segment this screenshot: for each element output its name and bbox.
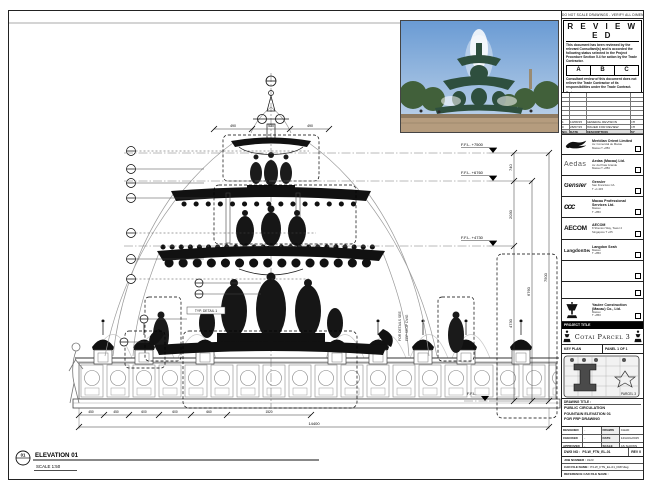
- side-notes: FOR DETAILS SEE FRP SHOP DWG: [398, 311, 409, 341]
- elevation-number: 01: [21, 453, 26, 458]
- status-selector: A B C: [566, 65, 639, 76]
- tier2-figures: [236, 206, 306, 247]
- stamp-checkbox: [635, 188, 641, 194]
- stamp-checkbox: [635, 290, 641, 296]
- top-dim-1: 490: [230, 124, 236, 128]
- gensler-logo: Gensler: [564, 183, 586, 189]
- top-dim-3: 490: [307, 124, 313, 128]
- reviewed-body-1: This document has been reviewed by the r…: [566, 43, 639, 64]
- consultant-macau-professional: ccc Macau Professional Services Ltd.Maca…: [562, 197, 643, 218]
- project-title-block: PROJECT TITLE Cotai Parcel 3: [562, 322, 643, 345]
- bottom-dimensions: 450 450 600 600 660 1520 14400: [76, 408, 552, 430]
- dim-6760: 6760: [526, 286, 531, 296]
- top-dimension: 490 530 490: [211, 124, 332, 132]
- key-plan-block: KEY PLAN PANEL 1 OF 1 PARCEL 3: [562, 345, 643, 399]
- dwg-no-value: P3-W_FTN_EL-01: [580, 448, 628, 456]
- ornament-icon: [634, 330, 642, 343]
- consultant-empty-2: [562, 282, 643, 299]
- revision-header-row: NO.DATEDESCRIPTIONBY: [562, 130, 643, 135]
- stamp-checkbox: [635, 231, 641, 237]
- reviewed-body-2: Consultant review of this document does …: [566, 77, 639, 89]
- level-4730-label: F.F.L. +4730: [461, 235, 484, 240]
- drawing-title-label: DRAWING TITLE :: [564, 400, 641, 405]
- aedas-logo: Aedas: [564, 161, 586, 168]
- dim-2030: 2030: [508, 209, 513, 219]
- dragon-logo-icon: [564, 139, 590, 150]
- key-plan-tag: PARCEL 3: [621, 392, 636, 396]
- fountain-photo: [400, 20, 559, 133]
- stamp-checkbox: [635, 273, 641, 279]
- trophy-logo-icon: [564, 301, 590, 320]
- fountain-photo-image: [401, 21, 558, 132]
- base-wall: [73, 358, 560, 408]
- drawing-number-row: DWG NO : P3-W_FTN_EL-01 REV 0: [562, 448, 643, 457]
- stamp-checkbox: [635, 313, 641, 319]
- drawing-title-line-3: FOR FRP DRAWING: [564, 417, 641, 423]
- status-c: C: [615, 66, 638, 75]
- project-title: Cotai Parcel 3: [571, 333, 634, 341]
- drawing-sheet-view: TYP. DETAIL 1 FOR DETAILS SEE FRP SHOP D…: [0, 0, 650, 488]
- key-plan-label: KEY PLAN: [562, 345, 603, 353]
- top-dim-2: 530: [268, 124, 274, 128]
- consultant-aecom: AECOM AECOM8 Shenton Way, Tower 2Singapo…: [562, 218, 643, 241]
- job-number-row: JOB NUMBER : 3123: [562, 457, 643, 464]
- elevation-title: ELEVATION 01: [35, 452, 79, 459]
- ornament-icon: [563, 330, 571, 343]
- dim-740: 740: [508, 164, 513, 171]
- reviewed-title: R E V I E W E D: [566, 22, 639, 42]
- stamp-checkbox: [635, 209, 641, 215]
- bottom-dim-4: 600: [172, 410, 178, 414]
- title-block: DO NOT SCALE DRAWINGS - VERIFY ALL DIMEN…: [561, 11, 643, 477]
- key-plan-map: PARCEL 3: [562, 354, 641, 399]
- level-ffl-label: F.F.L.: [467, 391, 477, 396]
- stamp-checkbox: [635, 146, 641, 152]
- consultant-empty-1: [562, 261, 643, 282]
- bottom-dim-3: 600: [141, 410, 147, 414]
- reviewed-stamp: R E V I E W E D This document has been r…: [562, 19, 643, 93]
- cad-file-row: CAD FILE NAME : P3-W_FTN_EL-01_FRP.dwg: [562, 464, 643, 471]
- side-note-1: FOR DETAILS SEE: [398, 311, 402, 341]
- level-6760-label: F.F.L. +6760: [461, 170, 484, 175]
- dwg-no-label: DWG NO :: [562, 448, 580, 456]
- status-a: A: [567, 66, 591, 75]
- project-title-label: PROJECT TITLE: [562, 322, 643, 329]
- bottom-dim-6: 1520: [265, 410, 272, 414]
- elevation-callout: 01 ELEVATION 01 SCALE 1:50: [16, 451, 319, 471]
- key-plan-panel: PANEL 1 OF 1: [603, 345, 643, 353]
- credits-table: DESIGNED-DRAWNCHAD CHECKED-DATE12/AUG/20…: [562, 427, 643, 448]
- sheet-note-strip: DO NOT SCALE DRAWINGS - VERIFY ALL DIMEN…: [562, 11, 643, 19]
- elevation-scale: SCALE 1:50: [36, 464, 61, 469]
- reference-file-row: REFERENCE CAD FILE NAME :: [562, 471, 643, 477]
- sheet-footer: JOB NUMBER : 3123 CAD FILE NAME : P3-W_F…: [562, 457, 643, 477]
- bottom-dim-5: 660: [206, 410, 212, 414]
- status-b: B: [591, 66, 615, 75]
- rev-badge: REV 0: [628, 448, 643, 456]
- dim-4730: 4730: [508, 318, 513, 328]
- stamp-checkbox: [635, 252, 641, 258]
- overall-dimension: 14400: [308, 421, 320, 426]
- consultant-aedas: Aedas Aedas (Macau) Ltd.Av. da Praia Gra…: [562, 155, 643, 176]
- side-note-2: FRP SHOP DWG: [405, 314, 409, 341]
- drawing-title-block: DRAWING TITLE : PUBLIC CIRCULATION FOUNT…: [562, 399, 643, 427]
- stamp-checkbox: [635, 167, 641, 173]
- ccc-logo: ccc: [564, 202, 574, 211]
- detail-tag: TYP. DETAIL 1: [187, 307, 225, 314]
- sheet-frame: TYP. DETAIL 1 FOR DETAILS SEE FRP SHOP D…: [8, 10, 644, 480]
- dim-7500: 7500: [543, 272, 548, 282]
- consultant-meridian: Meridian Orient LimitedAv. Comercial de …: [562, 135, 643, 155]
- langdon-seah-logo: LangdonSeah: [564, 248, 590, 253]
- bottom-dim-1: 450: [88, 410, 94, 414]
- contractor-yaulee: Yaulee Construction (Macau) Co., Ltd.Mac…: [562, 299, 643, 322]
- consultant-gensler: Gensler GenslerSan Francisco CAT +1 415: [562, 176, 643, 197]
- aecom-logo: AECOM: [564, 225, 587, 232]
- tier1-figures: [247, 152, 295, 190]
- level-7500-label: F.F.L. +7500: [461, 142, 484, 147]
- bottom-dim-2: 450: [113, 410, 119, 414]
- detail-tag-label: TYP. DETAIL 1: [195, 309, 217, 313]
- consultant-langdon-seah: LangdonSeah Langdon SeahMacauT +853: [562, 240, 643, 261]
- revision-table: 110/08/15GENERAL REVISIONCH 028/07/15ISS…: [562, 93, 643, 135]
